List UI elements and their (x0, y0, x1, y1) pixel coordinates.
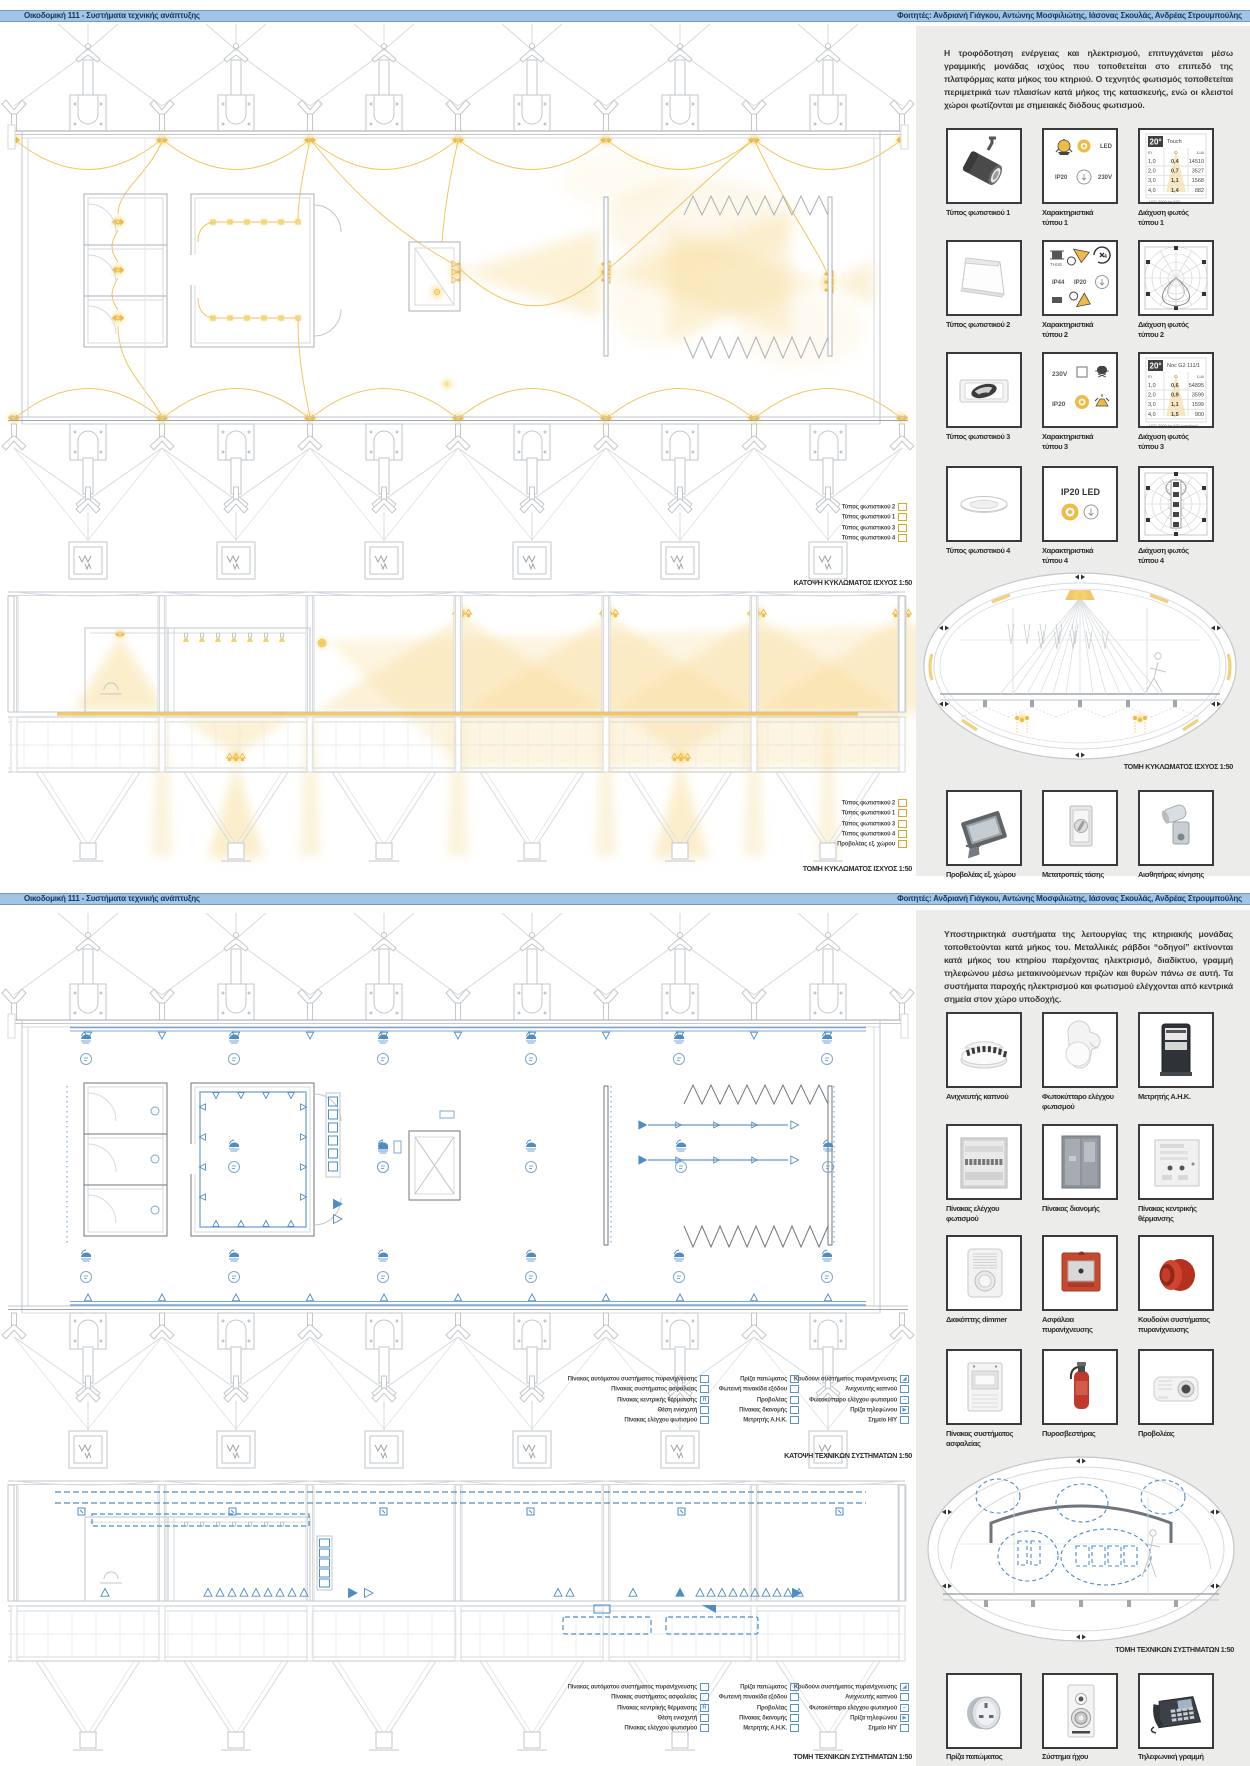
svg-text:Touch: Touch (1167, 139, 1182, 145)
svg-text:1568: 1568 (1192, 178, 1204, 184)
svg-text:14510: 14510 (1189, 159, 1204, 165)
svg-text:230V: 230V (1098, 175, 1112, 181)
svg-text:230V: 230V (1052, 371, 1068, 378)
svg-text:3527: 3527 (1192, 169, 1204, 175)
svg-text:3,0: 3,0 (1148, 402, 1156, 408)
svg-text:Lux: Lux (1197, 150, 1205, 155)
svg-text:THUE: THUE (1050, 262, 1062, 267)
svg-text:IP44: IP44 (1052, 280, 1065, 286)
svg-text:LED 3000 lm 930: LED 3000 lm 930 (1149, 199, 1181, 202)
svg-text:4,0: 4,0 (1148, 188, 1156, 194)
svg-text:Lux: Lux (1197, 374, 1205, 379)
svg-text:0,4: 0,4 (1171, 159, 1180, 165)
svg-text:1599: 1599 (1192, 402, 1204, 408)
svg-text:2,0: 2,0 (1148, 393, 1156, 399)
svg-text:1,0: 1,0 (1148, 159, 1156, 165)
svg-text:0,9: 0,9 (1171, 393, 1179, 399)
svg-text:1,1: 1,1 (1171, 402, 1179, 408)
svg-text:20°: 20° (1150, 138, 1162, 147)
svg-text:882: 882 (1195, 188, 1204, 194)
svg-text:2,0: 2,0 (1148, 169, 1156, 175)
svg-text:4: 4 (1104, 254, 1107, 260)
svg-text:m: m (1148, 150, 1152, 155)
svg-text:0,6: 0,6 (1171, 383, 1179, 389)
svg-text:3,0: 3,0 (1148, 178, 1156, 184)
svg-text:IP20 LED: IP20 LED (1061, 487, 1101, 497)
svg-text:1,5: 1,5 (1171, 412, 1179, 418)
svg-text:20°: 20° (1150, 362, 1162, 371)
svg-text:0,7: 0,7 (1171, 169, 1179, 175)
svg-text:1,1: 1,1 (1171, 178, 1179, 184)
svg-text:4,0: 4,0 (1148, 412, 1156, 418)
svg-text:Noc G2 111/1: Noc G2 111/1 (1167, 363, 1200, 369)
svg-text:900: 900 (1195, 412, 1204, 418)
svg-text:1,0: 1,0 (1148, 383, 1156, 389)
svg-text:1,4: 1,4 (1171, 188, 1180, 194)
svg-text:IP20: IP20 (1055, 175, 1068, 181)
svg-text:LED 2000 lm 930 (medium): LED 2000 lm 930 (medium) (1149, 423, 1199, 426)
svg-text:3599: 3599 (1192, 393, 1204, 399)
svg-text:LED: LED (1100, 144, 1113, 150)
svg-text:IP20: IP20 (1074, 280, 1087, 286)
svg-text:54895: 54895 (1189, 383, 1204, 389)
svg-text:m: m (1148, 374, 1152, 379)
svg-text:IP20: IP20 (1052, 401, 1066, 408)
